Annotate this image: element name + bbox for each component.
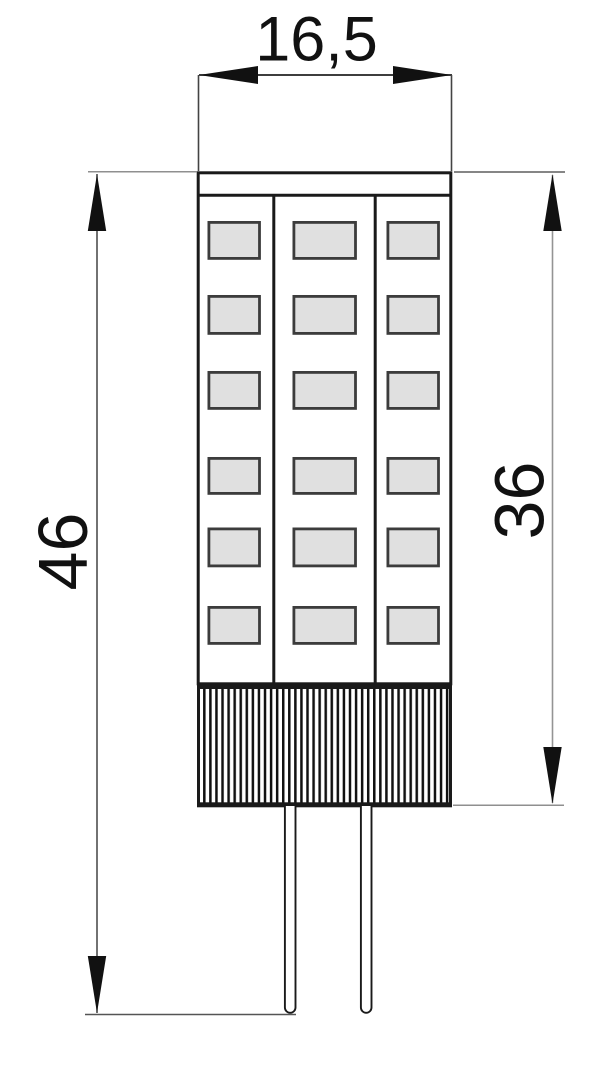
svg-text:36: 36	[481, 462, 559, 540]
svg-text:16,5: 16,5	[255, 5, 378, 75]
svg-text:46: 46	[24, 513, 102, 591]
